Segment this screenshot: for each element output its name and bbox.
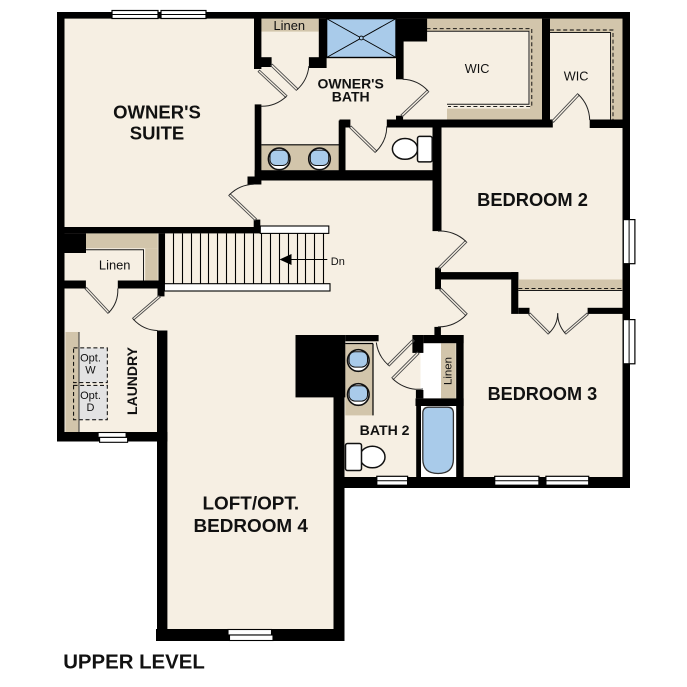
svg-text:UPPER LEVEL: UPPER LEVEL (63, 651, 205, 673)
svg-text:BEDROOM 2: BEDROOM 2 (477, 189, 588, 210)
svg-text:Linen: Linen (274, 18, 306, 33)
svg-text:Linen: Linen (443, 357, 455, 385)
svg-text:Opt.: Opt. (80, 353, 101, 365)
svg-text:OWNER'S: OWNER'S (113, 101, 201, 122)
svg-text:W: W (85, 365, 96, 377)
svg-text:BEDROOM 4: BEDROOM 4 (193, 516, 308, 537)
svg-text:WIC: WIC (564, 69, 589, 83)
svg-text:Dn: Dn (331, 256, 345, 268)
svg-text:WIC: WIC (465, 62, 490, 76)
svg-text:LAUNDRY: LAUNDRY (124, 346, 140, 415)
svg-text:SUITE: SUITE (130, 122, 184, 143)
svg-text:Opt.: Opt. (80, 390, 101, 402)
svg-text:BEDROOM 3: BEDROOM 3 (488, 384, 598, 404)
svg-text:D: D (87, 402, 95, 414)
svg-text:BATH 2: BATH 2 (360, 422, 410, 438)
svg-text:Linen: Linen (99, 258, 131, 273)
svg-text:LOFT/OPT.: LOFT/OPT. (203, 494, 300, 515)
svg-text:BATH: BATH (332, 89, 370, 105)
